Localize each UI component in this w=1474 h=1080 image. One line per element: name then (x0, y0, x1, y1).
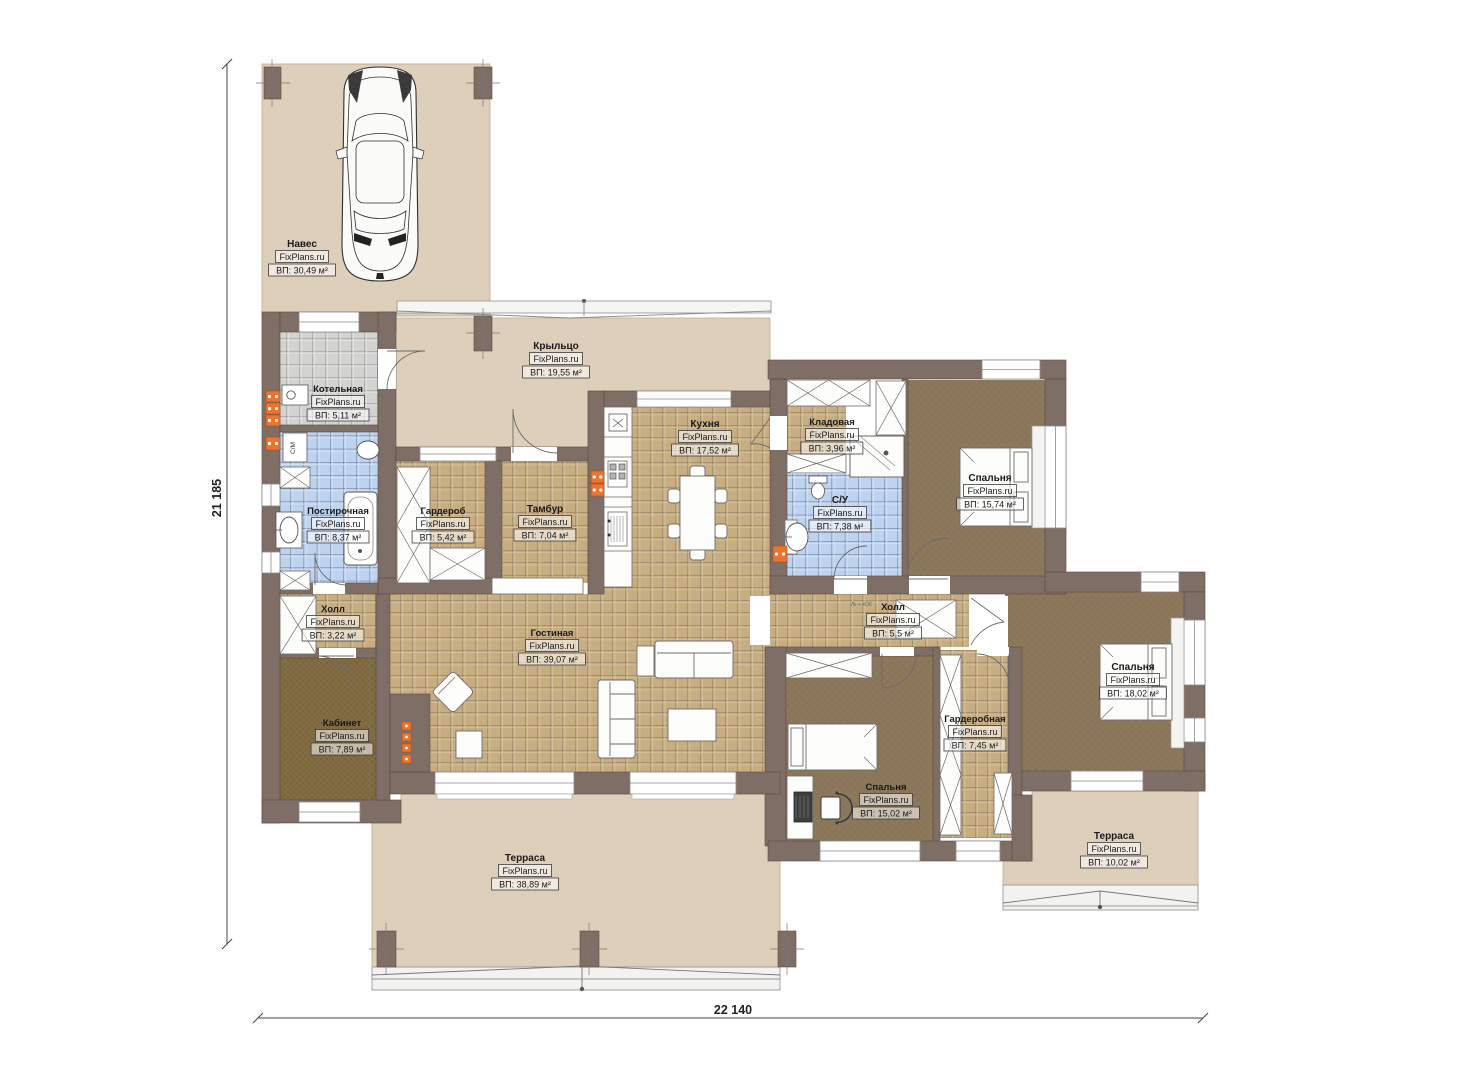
svg-text:ВП: 38,89 м²: ВП: 38,89 м² (499, 879, 551, 889)
svg-text:ВП: 7,04 м²: ВП: 7,04 м² (522, 530, 569, 540)
svg-text:ВП: 18,02 м²: ВП: 18,02 м² (1107, 688, 1159, 698)
svg-text:FixPlans.ru: FixPlans.ru (682, 432, 727, 442)
svg-text:FixPlans.ru: FixPlans.ru (863, 795, 908, 805)
svg-text:FixPlans.ru: FixPlans.ru (533, 354, 578, 364)
svg-text:FixPlans.ru: FixPlans.ru (319, 731, 364, 741)
svg-text:FixPlans.ru: FixPlans.ru (952, 727, 997, 737)
svg-text:С/У: С/У (832, 495, 849, 506)
svg-text:ВП: 5,5 м²: ВП: 5,5 м² (872, 628, 914, 638)
svg-text:FixPlans.ru: FixPlans.ru (310, 617, 355, 627)
svg-text:FixPlans.ru: FixPlans.ru (315, 519, 360, 529)
svg-text:Холл: Холл (321, 604, 345, 615)
svg-text:FixPlans.ru: FixPlans.ru (420, 519, 465, 529)
svg-text:ВП: 3,96 м²: ВП: 3,96 м² (809, 443, 856, 453)
svg-text:ВП: 39,07 м²: ВП: 39,07 м² (526, 654, 578, 664)
svg-text:ВП: 7,38 м²: ВП: 7,38 м² (817, 521, 864, 531)
svg-text:Крыльцо: Крыльцо (533, 341, 579, 352)
svg-text:21 185: 21 185 (210, 479, 224, 517)
svg-text:FixPlans.ru: FixPlans.ru (529, 641, 574, 651)
svg-text:ВП: 10,02 м²: ВП: 10,02 м² (1088, 857, 1140, 867)
svg-text:FixPlans.ru: FixPlans.ru (817, 508, 862, 518)
svg-text:ВП: 15,02 м²: ВП: 15,02 м² (860, 808, 912, 818)
svg-text:ВП: 19,55 м²: ВП: 19,55 м² (530, 367, 582, 377)
svg-text:Спальня: Спальня (1111, 662, 1154, 673)
svg-text:Терраса: Терраса (505, 853, 546, 864)
svg-text:FixPlans.ru: FixPlans.ru (1110, 675, 1155, 685)
svg-text:С/М: С/М (290, 442, 297, 454)
svg-text:ВП: 30,49 м²: ВП: 30,49 м² (276, 265, 328, 275)
svg-text:ВП: 15,74 м²: ВП: 15,74 м² (964, 499, 1016, 509)
svg-text:Кладовая: Кладовая (809, 417, 855, 428)
svg-text:22 140: 22 140 (714, 1003, 752, 1017)
svg-text:Холл: Холл (881, 602, 905, 613)
svg-text:ВП: 3,22 м²: ВП: 3,22 м² (310, 630, 357, 640)
svg-text:Спальня: Спальня (968, 473, 1011, 484)
svg-text:ВП: 5,42 м²: ВП: 5,42 м² (420, 532, 467, 542)
svg-text:ВП: 7,89 м²: ВП: 7,89 м² (319, 744, 366, 754)
svg-text:ВП: 5,11 м²: ВП: 5,11 м² (315, 410, 361, 420)
svg-text:Терраса: Терраса (1094, 831, 1135, 842)
svg-text:Котельная: Котельная (313, 384, 363, 395)
svg-text:FixPlans.ru: FixPlans.ru (870, 615, 915, 625)
svg-text:FixPlans.ru: FixPlans.ru (809, 430, 854, 440)
svg-text:Гардеробная: Гардеробная (944, 714, 1005, 725)
svg-text:Тамбур: Тамбур (527, 503, 563, 515)
svg-text:Спальня: Спальня (865, 782, 906, 793)
svg-text:Кухня: Кухня (690, 419, 719, 430)
svg-text:Навес: Навес (287, 239, 317, 250)
svg-text:Гостиная: Гостиная (531, 628, 574, 639)
svg-text:FixPlans.ru: FixPlans.ru (279, 252, 324, 262)
svg-text:FixPlans.ru: FixPlans.ru (1091, 844, 1136, 854)
svg-text:Кабинет: Кабинет (323, 718, 362, 729)
svg-text:Постирочная: Постирочная (307, 506, 369, 517)
svg-text:FixPlans.ru: FixPlans.ru (522, 517, 567, 527)
svg-text:ВП: 17,52 м²: ВП: 17,52 м² (679, 445, 731, 455)
svg-text:FixPlans.ru: FixPlans.ru (315, 397, 360, 407)
svg-text:ВП: 7,45 м²: ВП: 7,45 м² (952, 740, 999, 750)
svg-text:FixPlans.ru: FixPlans.ru (502, 866, 547, 876)
svg-text:Лк + 4Об: Лк + 4Об (851, 602, 872, 608)
svg-text:Гардероб: Гардероб (421, 506, 466, 517)
svg-text:FixPlans.ru: FixPlans.ru (967, 486, 1012, 496)
svg-text:ВП: 8,37 м²: ВП: 8,37 м² (315, 532, 362, 542)
